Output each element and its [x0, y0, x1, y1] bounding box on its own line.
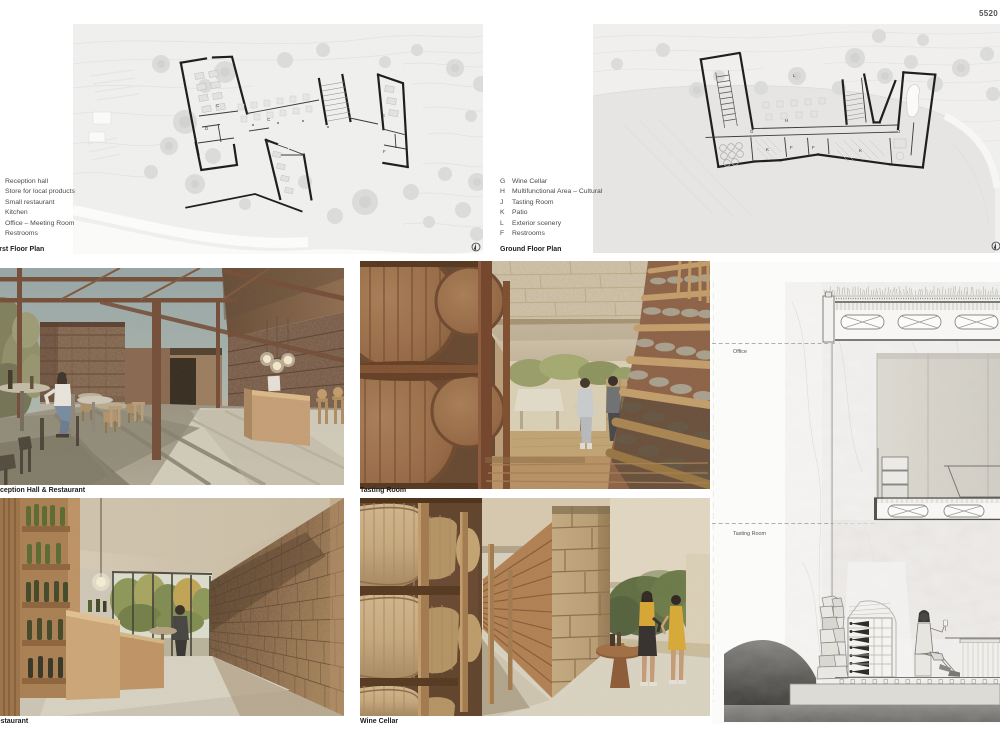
svg-text:K: K — [766, 147, 769, 152]
svg-text:J: J — [898, 129, 900, 134]
svg-text:K: K — [859, 148, 862, 153]
svg-text:F: F — [790, 145, 793, 150]
svg-text:E: E — [382, 113, 385, 118]
svg-text:Tasting Room: Tasting Room — [733, 531, 766, 537]
svg-text:B: B — [274, 176, 277, 181]
svg-text:F: F — [383, 149, 386, 154]
svg-text:Office: Office — [733, 349, 747, 355]
svg-text:A: A — [268, 139, 271, 144]
svg-text:C: C — [216, 103, 219, 108]
svg-text:G: G — [750, 129, 754, 134]
svg-text:C: C — [267, 117, 270, 122]
svg-text:H: H — [785, 118, 788, 123]
svg-text:D: D — [205, 126, 208, 131]
svg-text:F: F — [812, 145, 815, 150]
